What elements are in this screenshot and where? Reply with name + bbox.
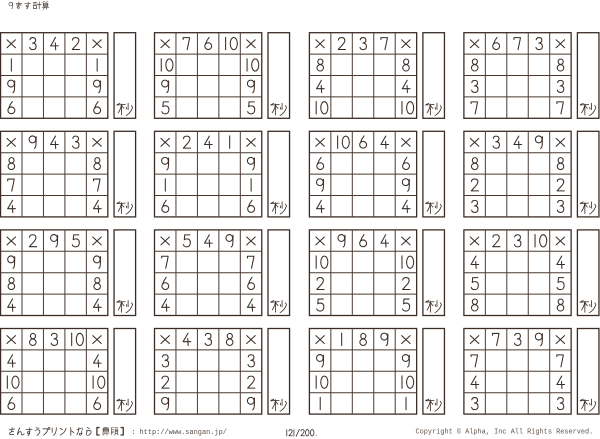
svg-text::: : (132, 429, 136, 437)
svg-text:Copyright © Alpha, Inc All Rig: Copyright © Alpha, Inc All Rights Reserv… (416, 428, 594, 437)
svg-text:http://www.sangan.jp/: http://www.sangan.jp/ (140, 429, 227, 437)
